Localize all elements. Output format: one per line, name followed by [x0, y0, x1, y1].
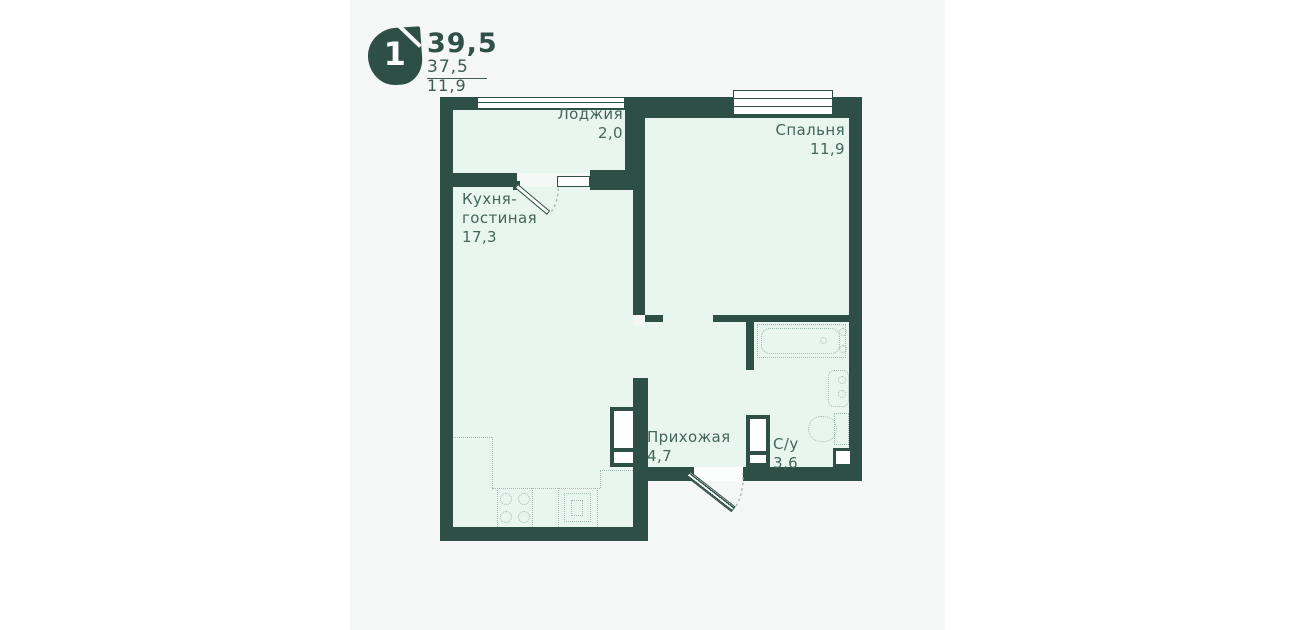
room-name: Кухня- — [462, 190, 517, 208]
room-area: 17,3 — [462, 228, 537, 247]
floorplan-card: 1 39,5 37,5 11,9 — [0, 0, 1301, 630]
room-area: 3,6 — [773, 454, 799, 473]
room-area: 11,9 — [775, 140, 845, 159]
room-name: гостиная — [462, 209, 537, 228]
room-name: Спальня — [775, 121, 845, 139]
floorplan-drawing: Лоджия 2,0 Спальня 11,9 Кухня- гостиная … — [440, 90, 862, 541]
room-area: 2,0 — [557, 124, 623, 143]
room-label-loggia: Лоджия 2,0 — [557, 105, 623, 143]
room-label-bedroom: Спальня 11,9 — [775, 121, 845, 159]
room-label-kitchen: Кухня- гостиная 17,3 — [462, 190, 537, 247]
rooms-count-badge: 1 — [368, 35, 422, 73]
door-swing-arc-balcony — [552, 186, 559, 212]
door-swing-arc-entrance — [736, 473, 743, 506]
room-name: Прихожая — [647, 428, 731, 446]
room-label-bathroom: С/у 3,6 — [773, 435, 799, 473]
room-name: Лоджия — [557, 105, 623, 123]
total-area-value: 39,5 — [427, 28, 498, 59]
room-label-hallway: Прихожая 4,7 — [647, 428, 731, 466]
room-area: 4,7 — [647, 447, 731, 466]
room-name: С/у — [773, 435, 799, 453]
